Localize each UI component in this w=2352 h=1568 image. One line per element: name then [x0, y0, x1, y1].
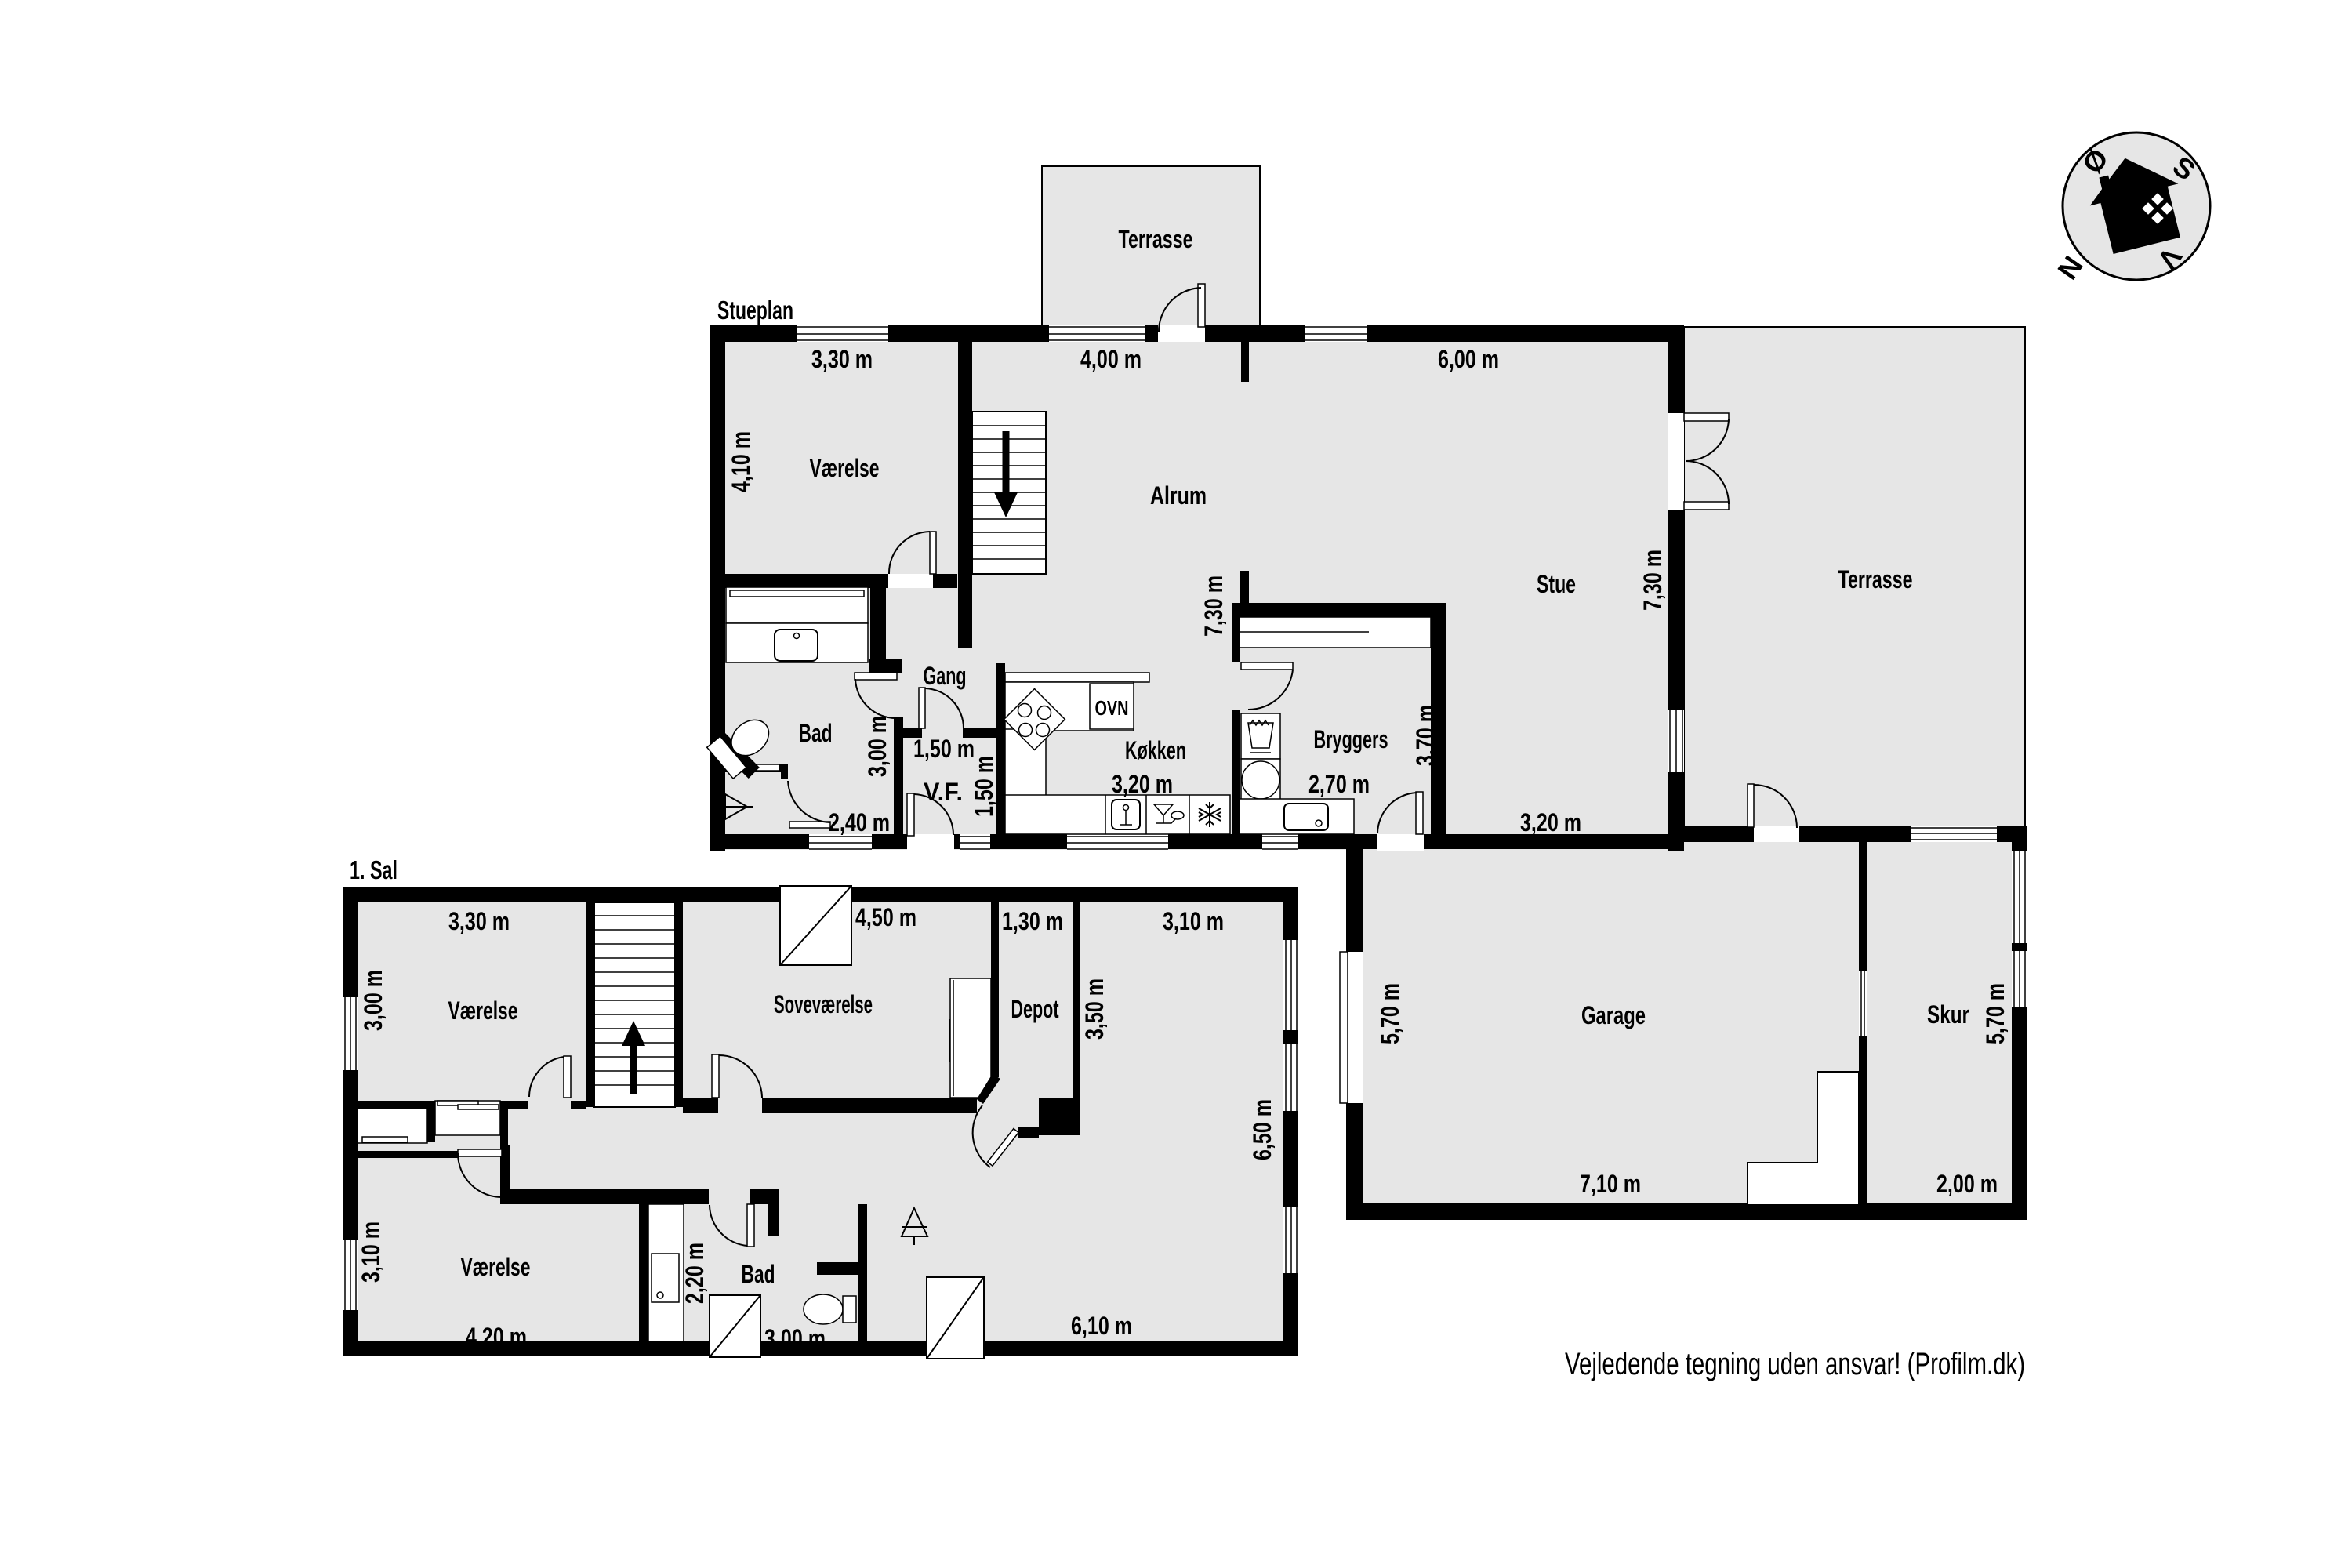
svg-text:7,30 m: 7,30 m	[1200, 575, 1228, 637]
svg-text:Gang: Gang	[924, 662, 967, 690]
svg-text:4,00 m: 4,00 m	[1080, 345, 1142, 373]
svg-text:3,30 m: 3,30 m	[448, 907, 510, 935]
svg-text:7,30 m: 7,30 m	[1639, 550, 1667, 611]
svg-text:3,00 m: 3,00 m	[863, 716, 891, 777]
svg-text:Terrasse: Terrasse	[1838, 565, 1913, 593]
svg-text:Bad: Bad	[799, 719, 833, 747]
svg-text:Værelse: Værelse	[448, 996, 518, 1025]
svg-text:6,10 m: 6,10 m	[1071, 1312, 1132, 1340]
svg-text:Værelse: Værelse	[461, 1253, 531, 1281]
svg-text:3,00 m: 3,00 m	[359, 970, 387, 1031]
svg-text:OVN: OVN	[1095, 696, 1129, 720]
svg-text:Bad: Bad	[742, 1260, 775, 1288]
svg-text:1,50 m: 1,50 m	[913, 735, 975, 763]
svg-text:Skur: Skur	[1927, 1000, 1969, 1029]
svg-text:5,70 m: 5,70 m	[1376, 983, 1404, 1044]
svg-text:Vejledende tegning uden ansvar: Vejledende tegning uden ansvar! (Profilm…	[1565, 1347, 2025, 1381]
svg-text:2,70 m: 2,70 m	[1308, 770, 1370, 798]
svg-text:3,30 m: 3,30 m	[811, 345, 873, 373]
svg-text:2,20 m: 2,20 m	[681, 1243, 709, 1304]
svg-text:4,20 m: 4,20 m	[466, 1323, 527, 1351]
svg-text:5,70 m: 5,70 m	[1981, 983, 2009, 1044]
svg-text:3,20 m: 3,20 m	[1520, 808, 1581, 837]
svg-text:4,50 m: 4,50 m	[855, 903, 916, 931]
svg-text:Stue: Stue	[1537, 570, 1576, 598]
svg-text:3,20 m: 3,20 m	[1112, 770, 1173, 798]
svg-text:6,00 m: 6,00 m	[1438, 345, 1499, 373]
svg-text:Værelse: Værelse	[810, 454, 880, 482]
svg-text:6,50 m: 6,50 m	[1248, 1099, 1276, 1160]
svg-text:2,40 m: 2,40 m	[829, 808, 890, 837]
svg-text:3,50 m: 3,50 m	[1080, 978, 1109, 1040]
svg-text:2,00 m: 2,00 m	[1936, 1170, 1998, 1198]
svg-text:1,50 m: 1,50 m	[970, 756, 998, 817]
svg-text:3,10 m: 3,10 m	[1163, 907, 1224, 935]
svg-text:Stueplan: Stueplan	[717, 296, 793, 325]
svg-text:Soveværelse: Soveværelse	[774, 990, 873, 1018]
svg-text:Alrum: Alrum	[1150, 481, 1207, 510]
svg-text:Garage: Garage	[1581, 1001, 1646, 1029]
svg-text:3,10 m: 3,10 m	[357, 1221, 385, 1283]
svg-text:Terrasse: Terrasse	[1119, 225, 1193, 253]
svg-text:3,70 m: 3,70 m	[1411, 705, 1439, 766]
svg-text:Bryggers: Bryggers	[1314, 725, 1388, 753]
svg-text:Depot: Depot	[1011, 995, 1059, 1023]
svg-text:Køkken: Køkken	[1125, 736, 1186, 764]
svg-text:4,10 m: 4,10 m	[727, 431, 755, 492]
svg-text:1,30 m: 1,30 m	[1002, 907, 1063, 935]
svg-text:1. Sal: 1. Sal	[350, 855, 397, 884]
svg-text:V.F.: V.F.	[924, 778, 963, 806]
svg-text:3,00 m: 3,00 m	[764, 1324, 826, 1352]
svg-text:7,10 m: 7,10 m	[1580, 1170, 1641, 1198]
